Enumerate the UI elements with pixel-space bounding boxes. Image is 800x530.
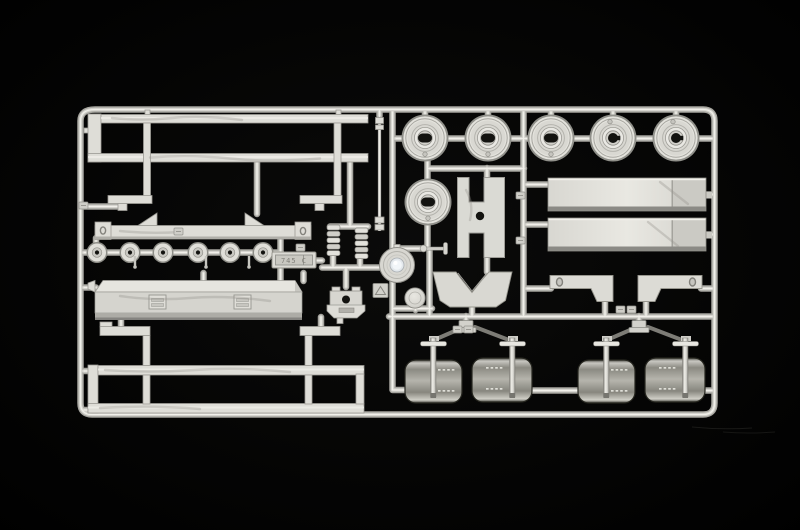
mold-number-tag: [296, 244, 305, 251]
photo-canvas: 745 C: [0, 0, 800, 530]
part-wheel-half: [653, 115, 700, 162]
part-roller: [220, 242, 241, 263]
part-mudguard: [645, 358, 705, 402]
mold-number-tag: [627, 306, 636, 313]
mold-number-tag: [453, 326, 462, 333]
mold-number-tag: [174, 228, 183, 235]
part-wheel-half: [528, 115, 575, 162]
mold-number-tag: [516, 237, 525, 244]
axle-slot: [481, 134, 495, 143]
box-latch: [149, 295, 166, 309]
part-wheel-half: [590, 115, 637, 162]
part-wheel-half: [405, 179, 452, 226]
part-storage-box: [88, 281, 302, 321]
part-leaf-spring: [355, 228, 368, 259]
part-wheel-half: [465, 115, 512, 162]
part-mudguard: [472, 358, 532, 402]
mold-number-tag: [79, 202, 88, 209]
bracket-hole: [557, 278, 563, 286]
part-ramp-plate-lower: [548, 218, 712, 251]
axle-slot: [418, 134, 432, 143]
part-ramp-plate-upper: [548, 178, 712, 211]
axle-slot: [421, 198, 435, 207]
part-roller: [120, 242, 141, 263]
part-roller: [153, 242, 174, 263]
mold-plate-text: 745 C: [281, 257, 307, 265]
triangle-mold-mark: [373, 284, 388, 298]
part-wheel-half: [402, 115, 449, 162]
sprue-photo: 745 C: [0, 0, 800, 530]
part-number-plate: 745 C: [272, 252, 316, 268]
mold-number-tag: [464, 326, 473, 333]
mold-number-tag: [616, 306, 625, 313]
bracket-hole: [690, 278, 696, 286]
mold-number-tag: [516, 192, 525, 199]
axle-slot: [544, 134, 558, 143]
part-disc: [405, 288, 425, 308]
part-roller: [253, 242, 274, 263]
part-leaf-spring: [327, 225, 340, 256]
part-roller: [87, 242, 108, 263]
